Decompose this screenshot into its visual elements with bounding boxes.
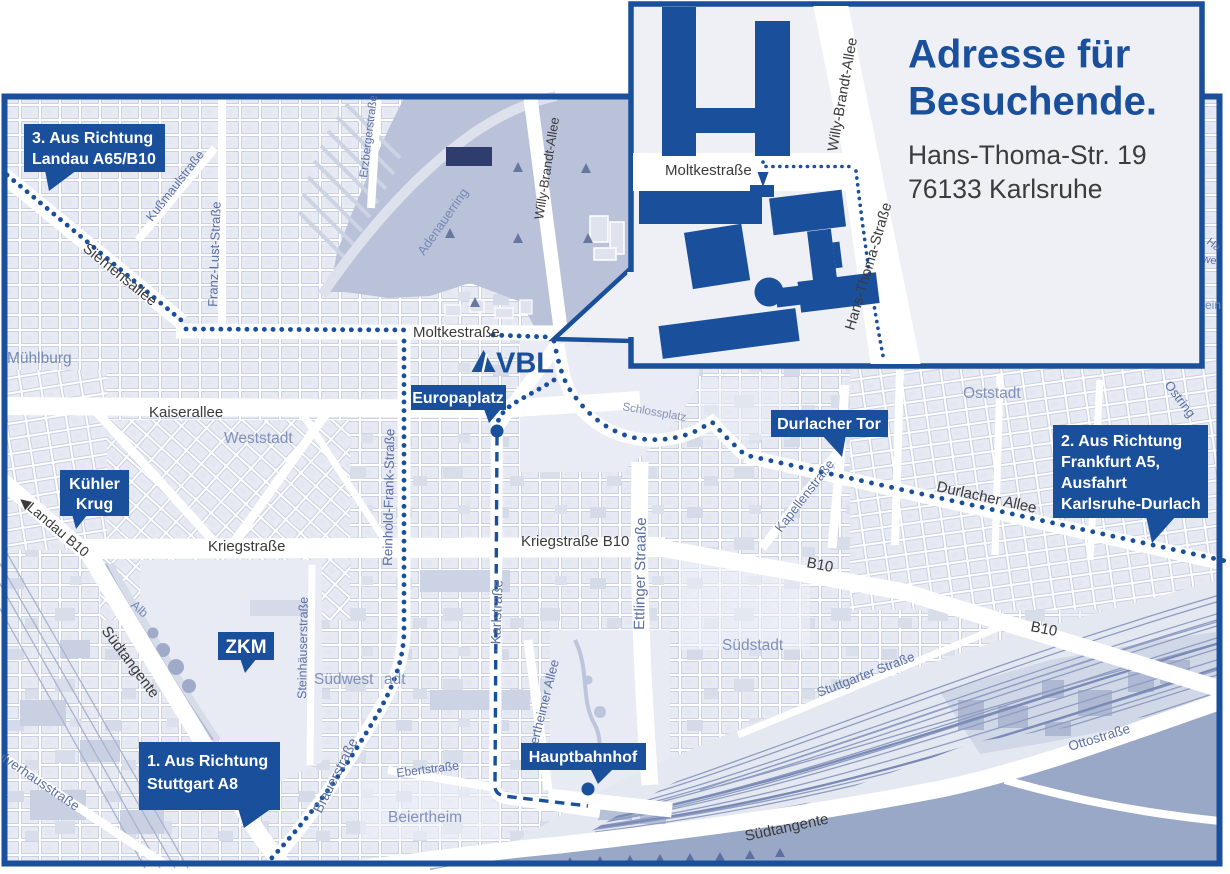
svg-text:Adresse für: Adresse für [908,33,1130,77]
svg-text:2. Aus Richtung: 2. Aus Richtung [1061,433,1182,450]
svg-text:Durlacher Tor: Durlacher Tor [777,416,881,433]
svg-text:Besuchende.: Besuchende. [908,80,1157,124]
svg-text:Moltkestraße: Moltkestraße [665,162,752,179]
svg-text:Südwest: Südwest [314,671,374,688]
svg-text:Weststadt: Weststadt [224,430,293,447]
svg-text:Krug: Krug [76,496,113,513]
svg-text:adt: adt [384,671,406,688]
svg-text:Karlsruhe-Durlach: Karlsruhe-Durlach [1061,496,1201,513]
svg-text:Oststadt: Oststadt [963,385,1021,402]
svg-text:Ausfahrt: Ausfahrt [1061,475,1127,492]
svg-text:VBL: VBL [496,348,554,380]
svg-text:Kriegstraße B10: Kriegstraße B10 [521,533,629,550]
svg-text:Kühler: Kühler [69,476,120,493]
svg-text:76133 Karlsruhe: 76133 Karlsruhe [908,174,1102,204]
svg-text:Landau A65/B10: Landau A65/B10 [32,151,156,168]
svg-text:Beiertheim: Beiertheim [388,809,462,826]
svg-text:ZKM: ZKM [225,637,266,658]
svg-text:Kaiserallee: Kaiserallee [149,404,223,421]
svg-text:Reinhold-Frank-Straße: Reinhold-Frank-Straße [380,428,397,566]
svg-text:Hauptbahnhof: Hauptbahnhof [529,749,638,766]
svg-text:1. Aus Richtung: 1. Aus Richtung [147,753,268,770]
svg-text:Frankfurt A5,: Frankfurt A5, [1061,454,1160,471]
svg-text:Ettlinger Straaße: Ettlinger Straaße [631,517,650,630]
svg-text:Hans-Thoma-Str. 19: Hans-Thoma-Str. 19 [908,140,1147,170]
svg-text:· Karlstraße: · Karlstraße [487,579,506,653]
svg-text:Europaplatz: Europaplatz [412,390,504,407]
svg-text:3. Aus Richtung: 3. Aus Richtung [32,130,153,147]
svg-text:Moltkestraße: Moltkestraße [413,324,500,341]
svg-text:Steinhäuserstraße: Steinhäuserstraße [295,597,311,699]
svg-text:Stuttgart A8: Stuttgart A8 [147,776,238,793]
svg-text:ein: ein [1205,298,1221,312]
svg-text:Südstadt: Südstadt [722,637,784,654]
svg-text:Mühlburg: Mühlburg [7,350,72,367]
svg-text:Kriegstraße: Kriegstraße [208,538,286,555]
